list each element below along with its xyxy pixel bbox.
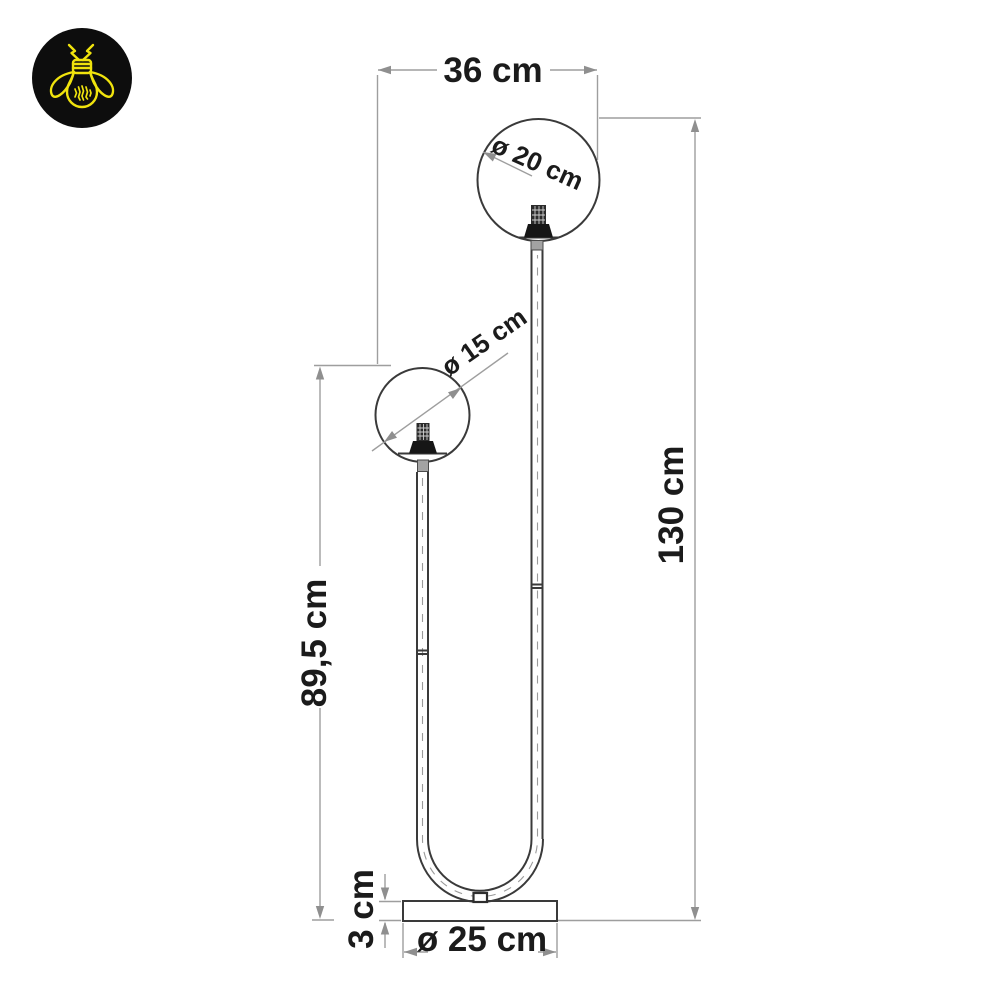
tube-joints xyxy=(417,585,543,655)
base-mount-block xyxy=(474,893,488,902)
large-globe-connector-ring xyxy=(531,241,543,251)
lamp-base xyxy=(403,901,557,921)
dim-label-large-globe-diameter: ø 20 cm xyxy=(487,129,588,196)
dim-label-base-diameter: ø 25 cm xyxy=(417,920,547,959)
dimension-arrowheads xyxy=(316,66,699,956)
large-bulb-thread xyxy=(531,205,546,224)
dimension-drawing-svg: 36 cm 130 cm 89,5 cm 3 cm ø 25 cm ø 20 c… xyxy=(0,0,1000,1000)
large-globe-socket xyxy=(524,224,553,238)
lamp-drawing xyxy=(376,119,600,921)
dimension-labels: 36 cm 130 cm 89,5 cm 3 cm ø 25 cm ø 20 c… xyxy=(295,51,691,959)
product-dimension-drawing: 36 cm 130 cm 89,5 cm 3 cm ø 25 cm ø 20 c… xyxy=(0,0,1000,1000)
dim-label-base-height: 3 cm xyxy=(342,869,381,949)
dim-label-top-width: 36 cm xyxy=(443,51,542,90)
dim-label-total-height: 130 cm xyxy=(652,446,691,565)
logo-circle xyxy=(32,28,132,128)
brand-logo xyxy=(32,28,132,128)
diameter-leaders xyxy=(372,148,532,451)
small-globe-socket xyxy=(409,441,437,454)
dimension-lines xyxy=(312,66,701,958)
dim-label-left-height: 89,5 cm xyxy=(295,579,334,707)
dim-base-height-lines xyxy=(379,874,401,948)
small-globe-connector-ring xyxy=(418,460,429,472)
